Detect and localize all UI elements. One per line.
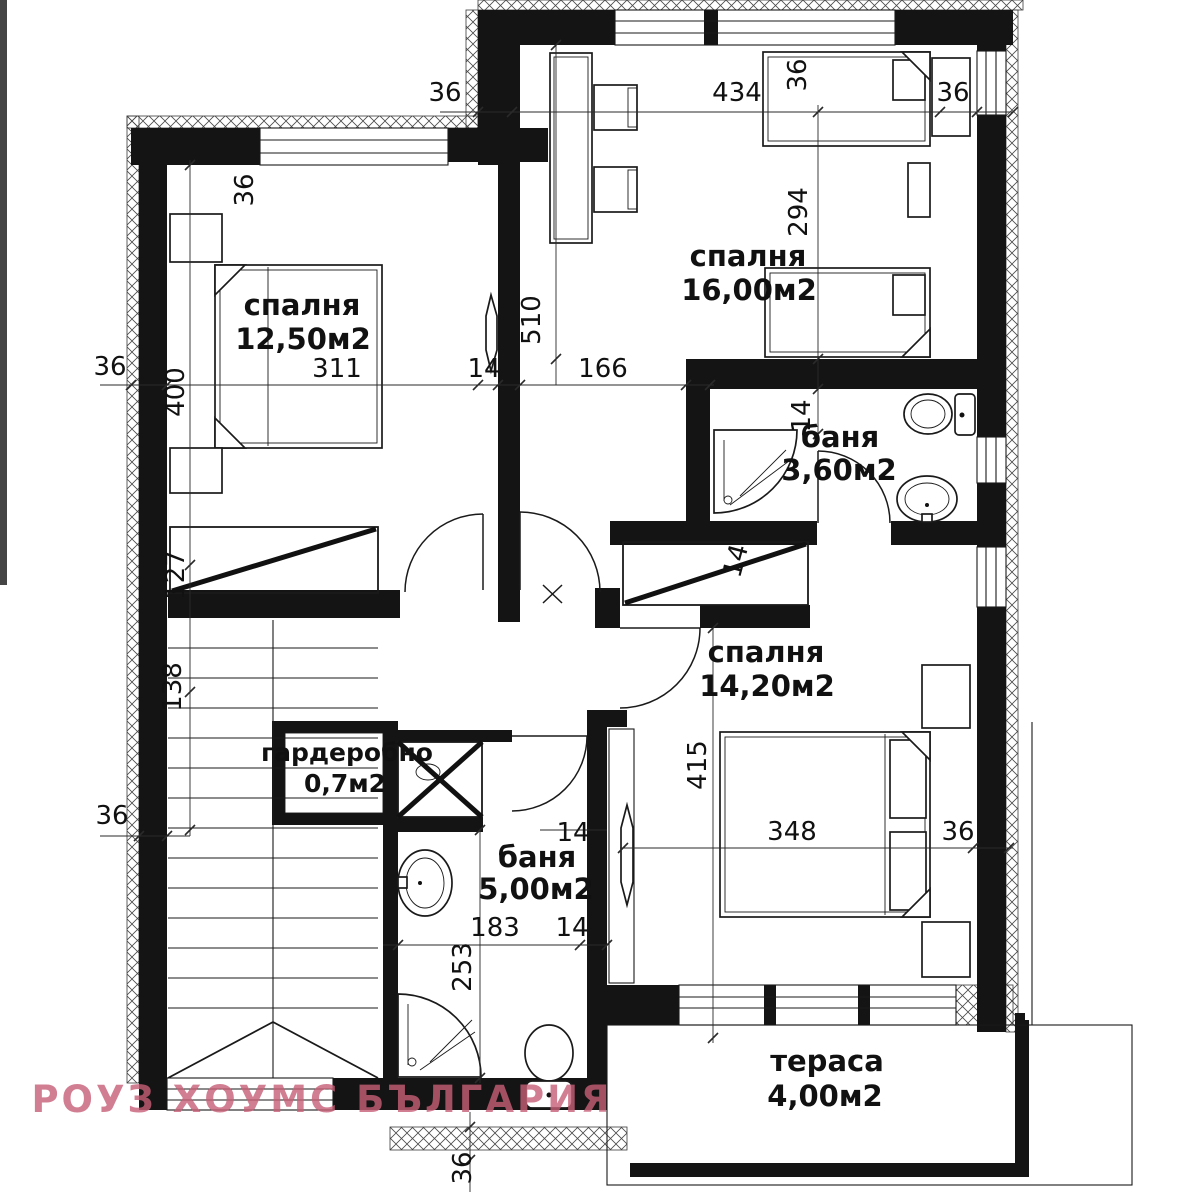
dim-label: 294	[784, 187, 814, 237]
dim-label: 36	[783, 58, 813, 91]
room-label-bath-big-area: 5,00м2	[478, 872, 593, 906]
dim-label: 36	[936, 78, 969, 108]
nightstand	[170, 448, 222, 493]
room-label-bedroom3-name: спалня	[708, 635, 825, 669]
watermark-text: РОУЗ ХОУМС БЪЛГАРИЯ	[31, 1078, 612, 1121]
mirror-bedroom3	[621, 805, 633, 905]
door-bedroom1	[405, 514, 483, 592]
room-label-closet-name: гардеробно	[261, 738, 433, 767]
dim-label: 166	[578, 354, 628, 384]
dim-label: 138	[158, 662, 188, 712]
window-terrace-french	[679, 985, 956, 1025]
window-bedroom1-top	[260, 128, 448, 165]
room-label-bedroom3-area: 14,20м2	[699, 669, 835, 703]
double-bed-bedroom3	[720, 665, 970, 977]
dim-label: 36	[941, 817, 974, 847]
sink-icon-bath-small	[897, 476, 957, 522]
desk-with-chairs	[550, 53, 637, 243]
dim-label: 253	[448, 942, 478, 992]
room-label-bedroom1-name: спалня	[244, 288, 361, 322]
dim-label: 36	[428, 78, 461, 108]
door-hall-right	[520, 512, 600, 592]
dim-label: 36	[95, 801, 128, 831]
dim-label: 14	[467, 354, 500, 384]
screen-edge-strip	[0, 0, 7, 585]
dim-label: 14	[555, 913, 588, 943]
nightstand	[922, 922, 970, 977]
door-bath-big	[512, 736, 587, 811]
shower-icon-bath-big	[398, 994, 481, 1077]
niche-hall	[623, 542, 808, 605]
room-label-bedroom2-name: спалня	[690, 239, 807, 273]
window-top-main	[615, 10, 895, 45]
dim-label: 36	[448, 1151, 478, 1184]
chair	[594, 167, 637, 212]
dim-label: 400	[161, 367, 191, 417]
dim-label: 14	[718, 541, 756, 581]
dim-label: 510	[517, 295, 547, 345]
door-bedroom3	[620, 628, 700, 708]
dim-label: 36	[93, 352, 126, 382]
room-label-bath-small-area: 3,60м2	[781, 453, 896, 487]
nightstand	[908, 163, 930, 217]
room-label-closet-area: 0,7м2	[304, 769, 386, 798]
dim-label: 348	[767, 817, 817, 847]
window-right-bedroom2	[977, 51, 1006, 115]
dim-label: 434	[712, 78, 762, 108]
room-label-terrace-area: 4,00м2	[767, 1079, 882, 1113]
window-right-bedroom3	[977, 547, 1006, 607]
nightstand	[922, 665, 970, 728]
room-label-bath-big-name: баня	[498, 840, 576, 874]
niche-bedroom1	[170, 527, 378, 593]
room-label-bedroom2-area: 16,00м2	[681, 273, 817, 307]
staircase	[168, 620, 378, 1078]
opening-cross-mark	[543, 585, 562, 603]
floor-plan-canvas: 36 434 36 36 36 294 400 311 14 166 510 3…	[0, 0, 1179, 1197]
window-right-bath-small	[977, 437, 1006, 483]
furniture	[170, 52, 975, 1108]
chair	[594, 85, 637, 130]
room-label-bath-small-name: баня	[801, 420, 879, 454]
nightstand	[170, 214, 222, 262]
dim-label: 127	[161, 550, 191, 600]
dim-label: 311	[312, 354, 362, 384]
dim-label: 183	[470, 913, 520, 943]
dim-label: 36	[230, 173, 260, 206]
toilet-icon-bath-small	[904, 394, 975, 435]
room-label-terrace-name: тераса	[770, 1044, 884, 1078]
dimension-labels: 36 434 36 36 36 294 400 311 14 166 510 3…	[93, 58, 974, 1184]
sink-icon-bath-big	[398, 850, 452, 916]
dim-label: 415	[683, 740, 713, 790]
room-label-bedroom1-area: 12,50м2	[235, 322, 371, 356]
floor-plan-drawing: 36 434 36 36 36 294 400 311 14 166 510 3…	[0, 0, 1179, 1197]
